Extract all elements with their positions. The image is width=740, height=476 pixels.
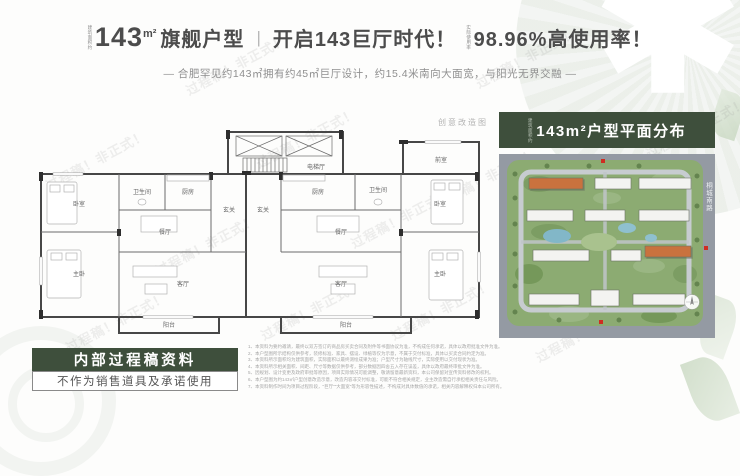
water-feature [645, 234, 657, 242]
area-prefix-label: 建筑面积约 [88, 25, 93, 50]
internal-draft-stamp: 内部过程稿资料 [32, 348, 238, 371]
area-unit: m² [143, 28, 156, 40]
title-left: 旗舰户型 [160, 23, 244, 52]
page-title: 建筑面积约 143 m² 旗舰户型 | 开启143巨厅时代！ 实际使用率 98.… [0, 22, 740, 53]
disclaimer-line: 3、本资料所示面积均为建筑面积，实际面积以最终测绘成果为准；户型尺寸为轴线尺寸，… [248, 357, 736, 364]
water-feature [618, 223, 636, 233]
room-label: 电梯厅 [307, 163, 325, 171]
not-for-sales-note: 不作为销售道具及承诺使用 [32, 371, 238, 391]
room-label: 厨房 [182, 188, 194, 196]
water-feature [543, 229, 571, 243]
disclaimer-line: 7、本资料制作时间为项目过程阶段，"巨厅""大面宽"等为形容性描述，不构成对具体… [248, 384, 736, 391]
siteplan-title: 143m²户型平面分布 [536, 120, 686, 141]
siteplan-title-prefix: 建筑面积约 [528, 118, 533, 143]
disclaimer-line: 6、本户型图为约143㎡户型创意改造示意，改造内容非交付标准，可能不符合相关规定… [248, 377, 736, 384]
area-value: 143 [95, 22, 143, 53]
disclaimer-block: 1、本资料为要约邀请，最终以双方签订的商品房买卖合同及附件等书面协议为准，不构成… [248, 344, 736, 390]
room-label: 客厅 [335, 280, 347, 288]
rate-prefix-label: 实际使用率 [466, 25, 471, 50]
room-labels: 卧室卫生间厨房玄关餐厅客厅主卧阳台玄关厨房卫生间卧室餐厅客厅主卧阳台电梯厅前室 [73, 156, 447, 329]
room-label: 主卧 [73, 270, 85, 278]
room-label: 阳台 [340, 321, 352, 329]
room-label: 餐厅 [159, 228, 171, 236]
room-label: 前室 [435, 156, 447, 164]
siteplan-title-band: 建筑面积约 143m²户型平面分布 [499, 112, 715, 148]
disclaimer-line: 1、本资料为要约邀请，最终以双方签订的商品房买卖合同及附件等书面协议为准，不构成… [248, 344, 736, 351]
compass-icon [685, 295, 700, 310]
central-lawn [581, 233, 617, 251]
stairs [243, 158, 287, 172]
disclaimer-line: 5、因规划、设计变更及政府审批等原因，项目实际情况可能调整，敬请留意最新资料，本… [248, 370, 736, 377]
room-label: 玄关 [223, 206, 235, 214]
room-label: 客厅 [177, 280, 189, 288]
disclaimer-line: 2、本户型图所示结构仅供参考，装修标准、家具、摆设、绿植等仅为示意，不属于交付标… [248, 351, 736, 358]
floorplan-drawing: 卧室卫生间厨房玄关餐厅客厅主卧阳台玄关厨房卫生间卧室餐厅客厅主卧阳台电梯厅前室 [33, 112, 485, 340]
room-label: 阳台 [163, 321, 175, 329]
room-label: 卫生间 [369, 186, 387, 194]
room-label: 餐厅 [335, 228, 347, 236]
elevator-shafts [236, 136, 332, 156]
disclaimer-line: 4、本资料所示相关面积、间距、尺寸等数据仅供参考，部分数据因四舍五入存在误差，具… [248, 364, 736, 371]
windows [40, 141, 480, 318]
room-label: 卫生间 [133, 188, 151, 196]
siteplan-map: 桐城南路 [499, 154, 715, 338]
title-divider: | [256, 28, 260, 48]
room-label: 玄关 [257, 206, 269, 214]
subtitle: — 合肥罕见约143㎡拥有约45㎡巨厅设计，约15.4米南向大面宽，与阳光无界交… [0, 66, 740, 81]
room-label: 厨房 [312, 188, 324, 196]
room-label: 卧室 [73, 200, 85, 208]
room-label: 卧室 [434, 200, 446, 208]
room-label: 主卧 [434, 270, 446, 278]
interior-walls [41, 174, 479, 317]
title-mid: 开启143巨厅时代！ [273, 23, 456, 52]
title-right: 98.96%高使用率！ [474, 23, 653, 52]
